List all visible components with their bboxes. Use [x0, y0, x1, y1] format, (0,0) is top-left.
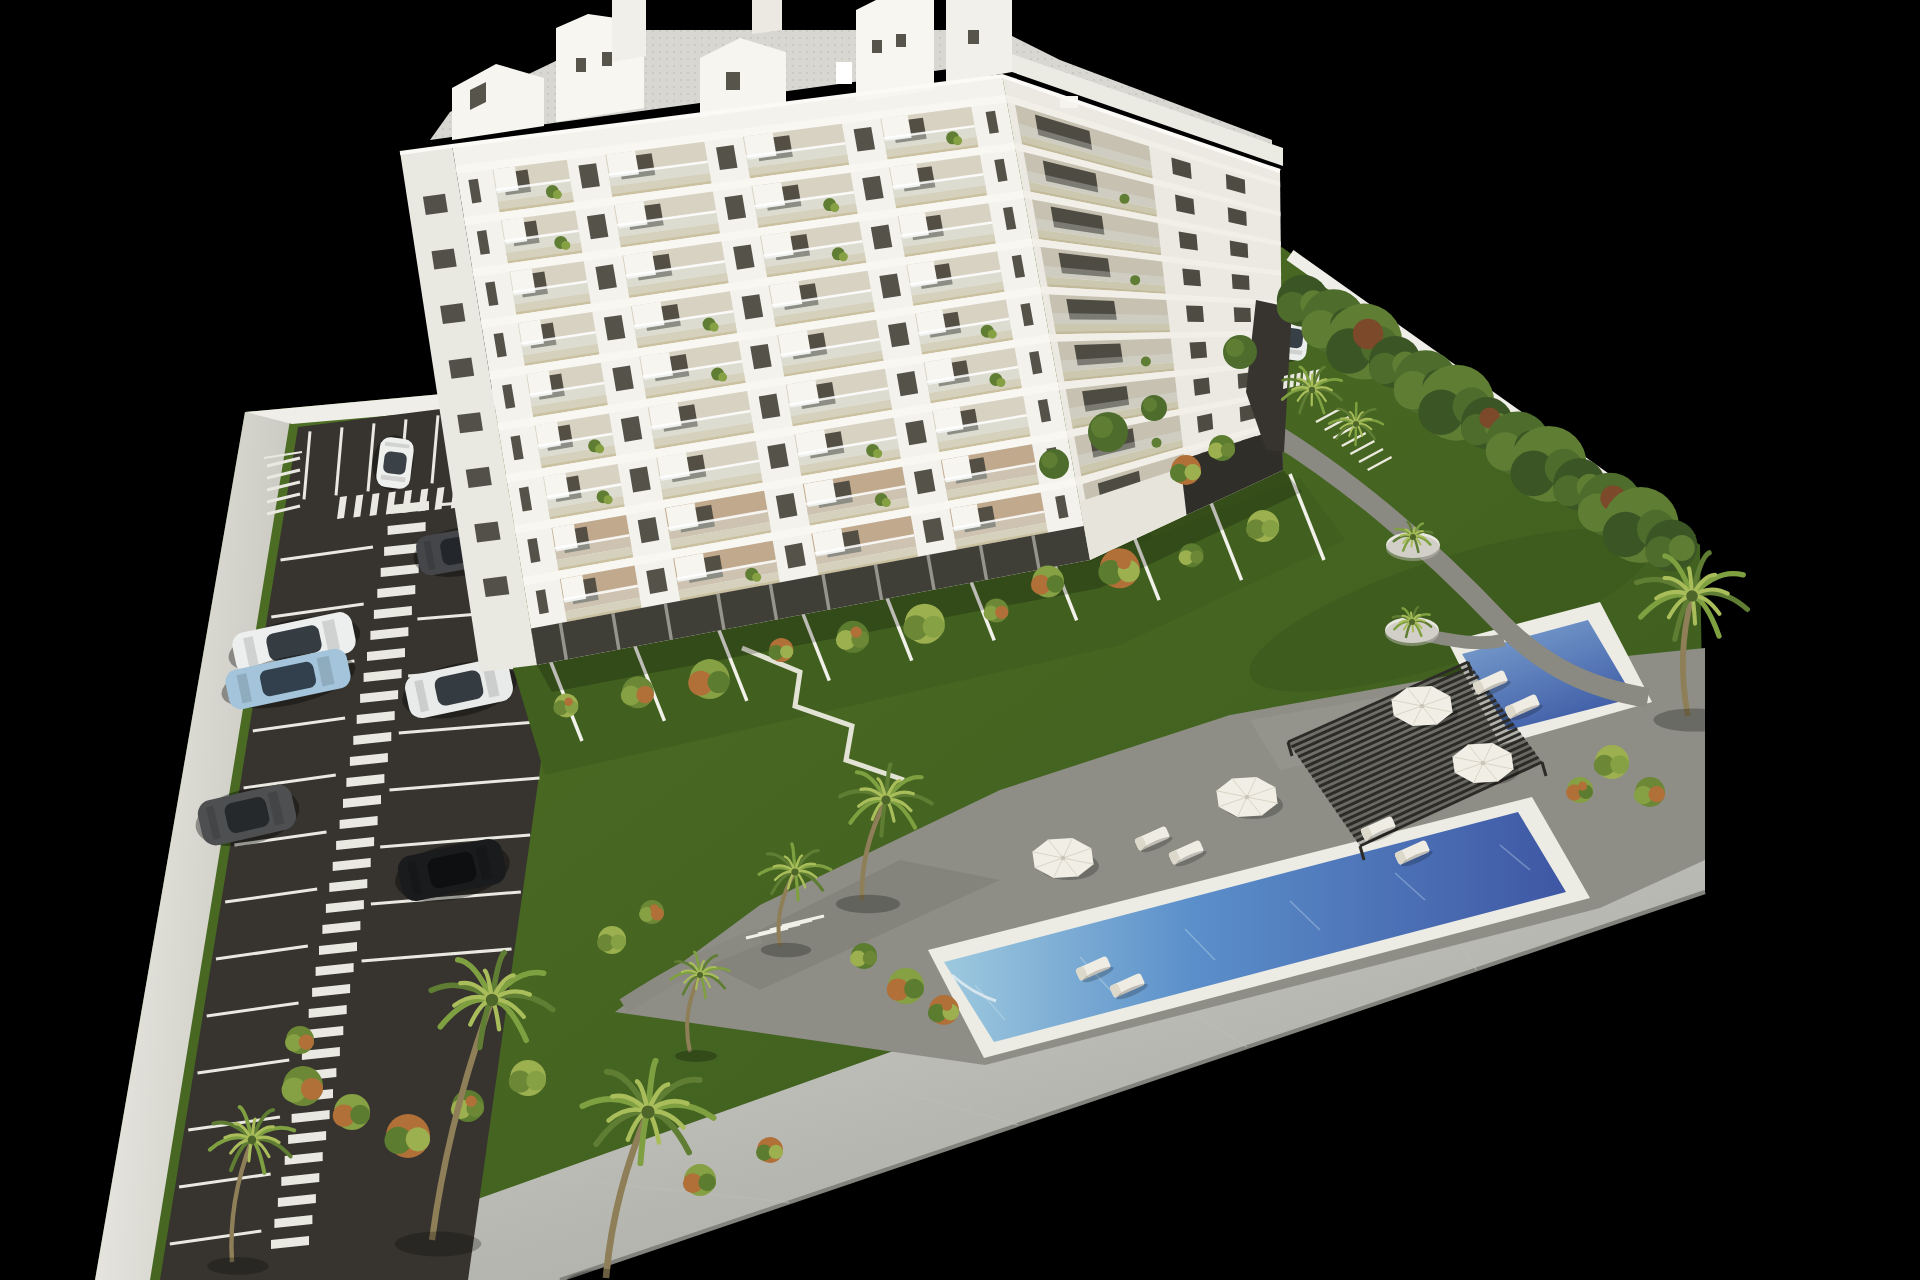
garden-tree [1088, 412, 1128, 452]
roof-chimney [752, 0, 782, 34]
site-plan-render [0, 0, 1920, 1280]
garden-tree [1223, 335, 1257, 369]
render-canvas [0, 0, 1920, 1280]
garden-tree [1039, 449, 1069, 479]
roof-chimney [612, 0, 646, 62]
hedge-tree [1645, 519, 1697, 571]
garden-tree [1141, 395, 1167, 421]
